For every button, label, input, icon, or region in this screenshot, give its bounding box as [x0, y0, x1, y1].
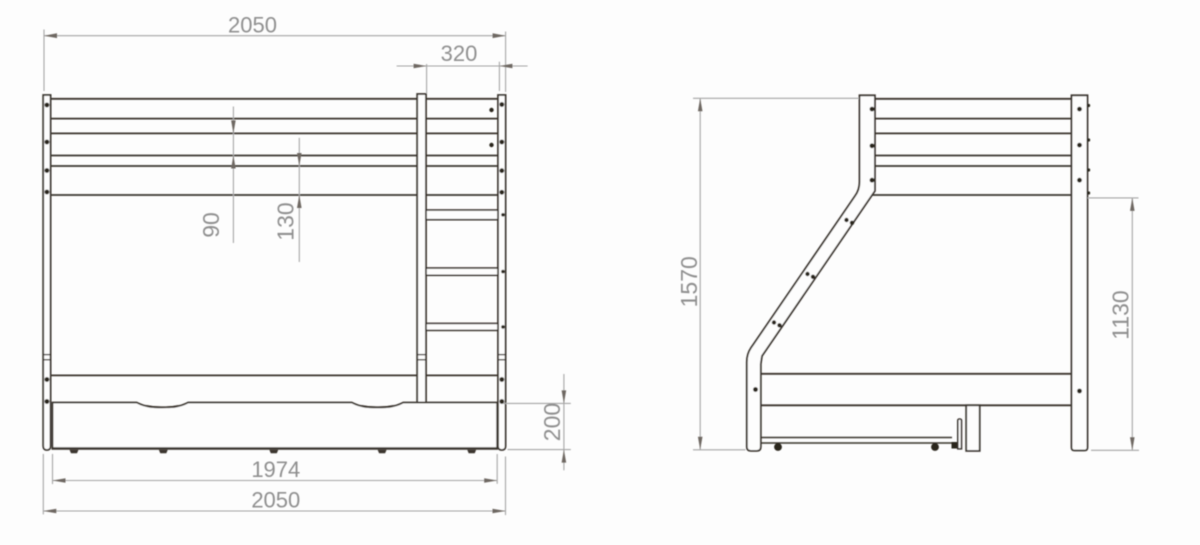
- svg-text:1974: 1974: [251, 457, 300, 482]
- svg-text:1130: 1130: [1108, 290, 1134, 339]
- svg-text:90: 90: [198, 212, 224, 238]
- svg-text:2050: 2050: [251, 488, 300, 513]
- svg-text:2050: 2050: [228, 13, 277, 38]
- svg-text:130: 130: [273, 202, 299, 240]
- svg-text:200: 200: [539, 403, 565, 441]
- svg-text:320: 320: [441, 41, 478, 66]
- svg-text:1570: 1570: [676, 256, 702, 307]
